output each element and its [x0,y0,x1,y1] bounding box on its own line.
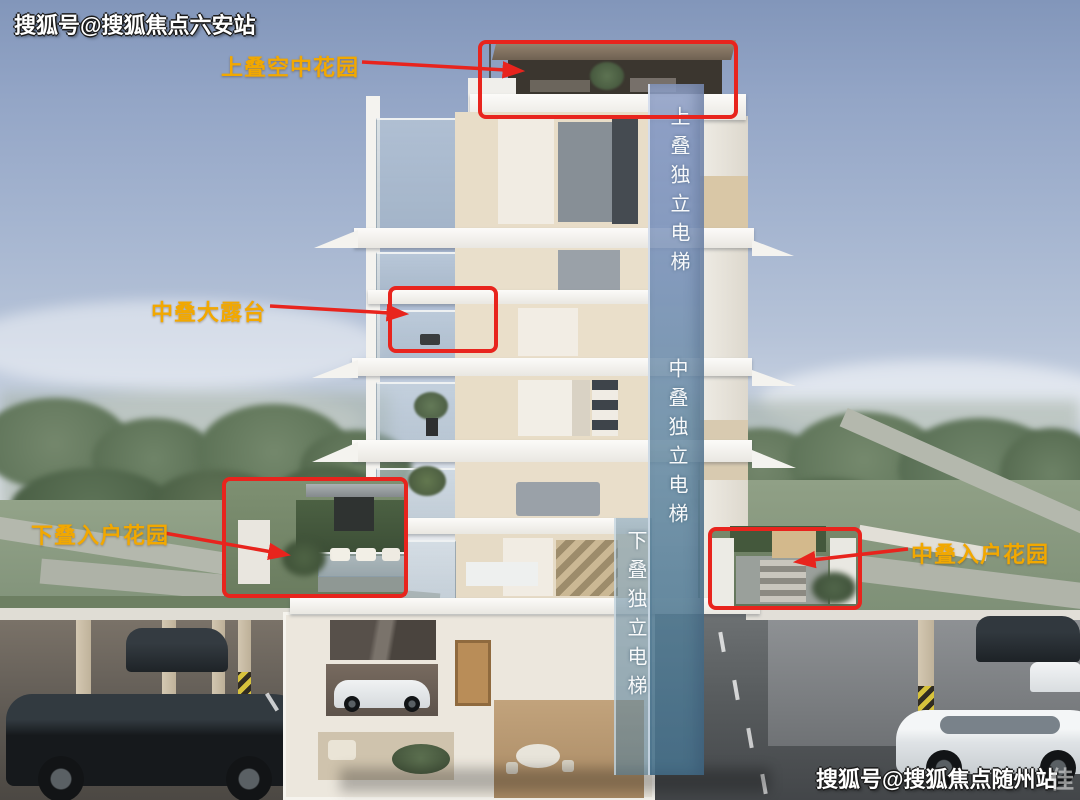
interior-gray [558,250,620,290]
dining-table [516,744,560,768]
interior-wall [455,248,650,290]
elevator-text-upper: 上叠独立电梯 [664,106,693,296]
elevator-text-lower: 下叠独立电梯 [621,530,650,720]
callout-label-terrace: 中叠大露台 [151,295,266,327]
callout-box-terrace [388,286,498,353]
callout-box-lower-entry-garden [222,477,408,598]
car-dark-right [976,616,1080,662]
elevator-text-middle: 中叠独立电梯 [662,358,691,548]
balcony-plant [408,466,446,496]
basement-window [330,620,436,660]
car-dark-suv [126,628,228,672]
interior-bed [516,482,600,516]
callout-label-lower-entry-garden: 下叠入户花园 [31,518,169,550]
balcony-plant [414,392,448,420]
slab-wing [752,240,794,256]
slab-wing [314,230,358,248]
promo-render: 上叠独立电梯 中叠独立电梯 下叠独立电梯 上叠空中花园 中叠大露台 下叠入户花园… [0,0,1080,800]
hazard-stripe [918,686,934,712]
car-wheel [344,696,360,712]
basement-door [455,640,491,706]
right-column-tan-block [700,176,748,234]
callout-label-sky-garden: 上叠空中花园 [221,50,359,82]
watermark-top-left: 搜狐号@搜狐焦点六安站 [14,8,255,40]
car-wheel [404,696,420,712]
interior-dark-unit [612,118,638,224]
interior-marble [498,118,554,224]
building-shadow [340,768,770,792]
interior-wardrobe [518,380,590,436]
callout-box-middle-entry-garden [708,527,862,610]
kitchen-island [466,562,538,586]
car-window-band [940,716,1060,734]
floor-slab [368,518,650,534]
interior-stairs [556,540,618,596]
car-wheel [38,756,84,800]
carport-roof-left [0,608,292,620]
car-wheel [226,756,272,800]
callout-label-middle-entry-garden: 中叠入户花园 [911,537,1049,569]
watermark-faint-corner: 佳 [1050,760,1074,795]
watermark-bottom-right: 搜狐号@搜狐焦点随州站 [816,762,1057,794]
callout-box-sky-garden [478,40,738,119]
interior-checker [592,380,618,436]
plant-pot [426,418,438,436]
lounge-chair [328,740,356,760]
interior-marble [518,308,578,356]
balcony-glass [376,118,456,229]
car-white-small [1030,662,1080,692]
